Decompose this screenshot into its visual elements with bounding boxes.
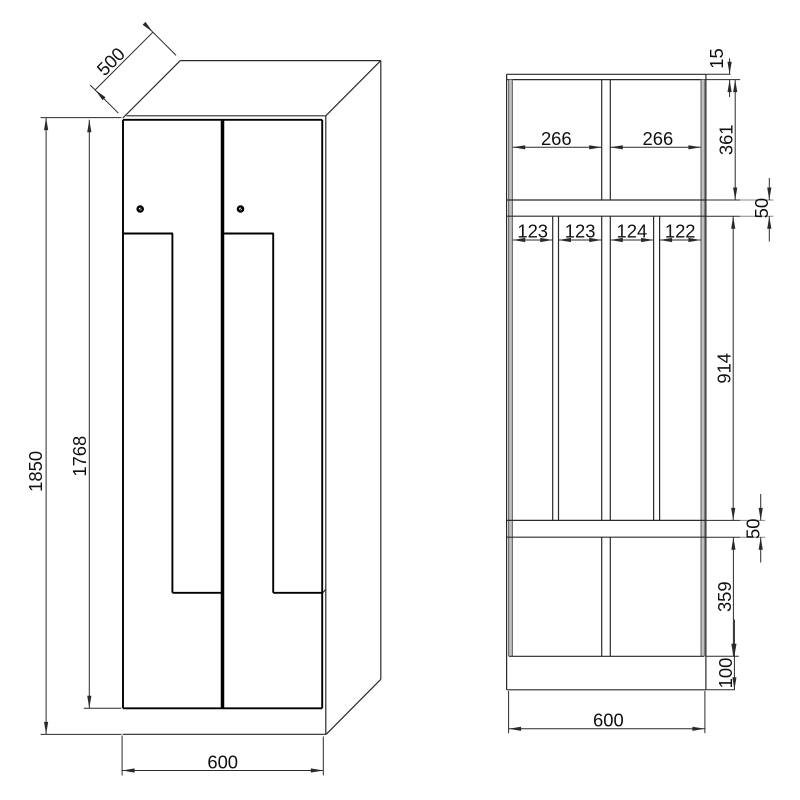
svg-text:359: 359	[714, 581, 735, 612]
svg-text:600: 600	[593, 710, 624, 731]
svg-text:361: 361	[716, 124, 737, 155]
svg-text:123: 123	[517, 220, 548, 241]
svg-text:1850: 1850	[25, 451, 46, 492]
svg-text:15: 15	[706, 48, 727, 68]
svg-text:122: 122	[665, 220, 696, 241]
svg-text:1768: 1768	[69, 436, 90, 477]
svg-text:124: 124	[617, 220, 648, 241]
svg-text:100: 100	[715, 658, 736, 689]
svg-text:266: 266	[541, 128, 572, 149]
svg-text:600: 600	[207, 751, 238, 772]
svg-text:123: 123	[565, 220, 596, 241]
svg-text:914: 914	[714, 353, 735, 384]
svg-text:50: 50	[751, 198, 772, 218]
svg-text:50: 50	[742, 519, 763, 539]
svg-text:266: 266	[643, 128, 674, 149]
